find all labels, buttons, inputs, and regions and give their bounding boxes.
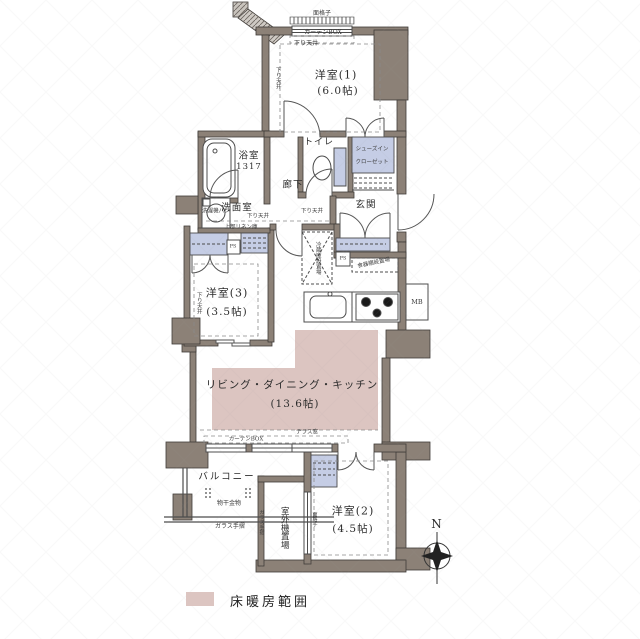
room-label-entrance: 玄関 [355, 200, 376, 210]
shoes-closet-label: クローゼット [355, 160, 388, 166]
room-label-toilet: トイレ [304, 139, 334, 148]
room-label-bathroom: 浴室 [238, 151, 259, 161]
pipe-space-label: PS [230, 245, 237, 250]
room-label-ldk: リビング・ダイニング・キッチン [206, 380, 379, 391]
room-label-western1: 洋室(1) [315, 70, 358, 81]
window-grate-label: 面格子 [313, 11, 331, 17]
dropped-ceiling-label: 下り天井 [294, 41, 318, 47]
dropped-ceiling-label: 下り天井 [301, 209, 323, 215]
terrace-window-label: テラス窓 [296, 430, 318, 436]
floor-plan: 洋室(1) (6.0帖) 洋室(3) (3.5帖) リビング・ダイニング・キッチ… [0, 0, 640, 639]
laundry-hardware-label: 物干金物 [217, 501, 241, 507]
room-label-outdoor-unit: 室外機置場 [280, 507, 289, 550]
room-size-western1: (6.0帖) [317, 86, 358, 97]
dropped-ceiling-label: 下り天井 [247, 214, 269, 220]
meter-box-label: MB [411, 299, 422, 306]
curtain-box-top-label: カーテンBOX [304, 30, 342, 36]
room-label-western3: 洋室(3) [206, 288, 249, 299]
dropped-ceiling-label: 下り天井 [195, 292, 201, 314]
room-size-ldk: (13.6帖) [270, 399, 319, 410]
glass-railing-label: ガラス手摺 [259, 510, 264, 535]
window-grate-side-label: 面格子 [312, 512, 317, 527]
fridge-space-label: 冷蔵庫設置場 [314, 242, 320, 275]
glass-railing-label: ガラス手摺 [215, 524, 245, 530]
dropped-ceiling-label: 下り天井 [274, 67, 280, 89]
room-size-western2: (4.5帖) [332, 524, 373, 535]
shoes-closet-label: シューズイン [356, 147, 389, 153]
room-label-hallway: 廊下 [282, 180, 303, 190]
curtain-box-bottom-label: カーテンBOX [229, 437, 263, 443]
compass-north-label: N [431, 518, 443, 530]
legend-floor-heating-swatch [186, 592, 214, 606]
washer-pan-label: 洗濯機パン [202, 209, 230, 215]
room-label-western2: 洋室(2) [332, 506, 375, 517]
pipe-space-label: PS [340, 257, 347, 262]
legend-floor-heating-label: 床暖房範囲 [230, 591, 310, 610]
room-size-western3: (3.5帖) [206, 307, 247, 318]
upper-linen-label: 上部リネン庫 [224, 225, 257, 231]
room-label-balcony: バルコニー [198, 472, 255, 482]
room-size-bathroom: 1317 [236, 163, 262, 172]
